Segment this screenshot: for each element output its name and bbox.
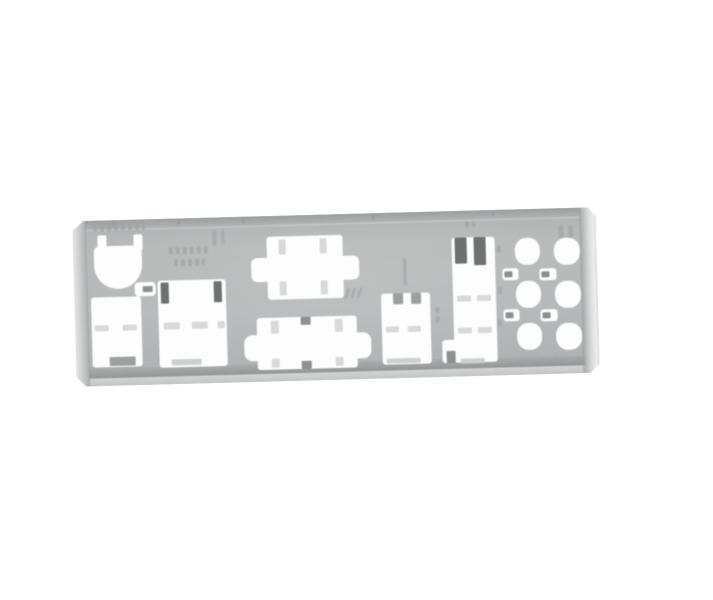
window-tab [542,312,550,318]
window-tab [504,271,512,277]
embossed-marking [498,320,502,327]
audio-jack-cutout [556,322,583,350]
io-shield-photo [0,0,713,600]
audio-jack-cutout [553,237,580,265]
grounding-finger [454,237,467,263]
retention-tab [301,317,311,325]
left-usb-block-bottom-tab [110,356,136,366]
fold-tick [372,214,375,220]
cutout-shading [335,319,343,332]
indicator-window-cutout [502,268,518,280]
window-tab [505,312,513,318]
audio-jack-cutout [555,280,582,308]
cutout-shading [123,324,137,330]
cutout-shading [336,357,344,366]
cutout-shading [386,326,399,332]
cutout-shading [192,321,208,328]
latch-slot [161,283,170,304]
cutout-shading [387,358,421,364]
embossed-marking [540,358,568,364]
plate-left-rolled-edge [72,221,89,387]
embossed-marking [498,288,502,295]
cutout-shading [408,326,421,332]
embossed-stamp-marking [169,246,209,254]
cutout-shading [458,327,472,333]
cutout-shading [278,239,285,254]
cutout-shading [457,295,471,301]
window-tab [541,271,549,277]
cutout-shading [477,295,491,301]
embossed-marking [212,230,216,245]
embossed-marking [465,221,475,227]
embossed-stamp-marking [93,222,145,231]
grounding-tab [447,351,456,363]
cutout-shading [164,322,180,329]
audio-jack-cutout [517,322,543,350]
cutout-shading [321,280,328,294]
fold-tick [177,219,180,225]
cutout-shading [478,327,492,333]
audio-jack-cutout [514,237,540,265]
embossed-marking [356,287,362,298]
audio-jack-cutout [516,280,542,308]
embossed-marking [435,307,439,313]
embossed-stamp-marking [174,259,205,267]
fold-tick [492,211,495,217]
plate-right-rolled-edge [581,207,600,373]
indicator-window-cutout [540,309,557,321]
cutout-shading [271,321,279,334]
cutout-shading [319,238,326,253]
embossed-marking [497,246,501,253]
latch-slot [214,281,223,302]
small-slot-tab [143,286,153,292]
cutout-shading [172,359,202,366]
io-shield-plate [72,207,600,387]
fold-tick [242,217,245,223]
retention-tab [302,361,312,369]
usb-symbol-marking [403,258,407,285]
grounding-tab [393,293,403,304]
cutout-shading [95,325,109,331]
grounding-tab [411,293,421,304]
cutout-shading [280,281,287,295]
indicator-window-cutout [503,309,519,321]
indicator-window-cutout [539,268,556,280]
grounding-finger [473,237,486,265]
cutout-shading [272,359,280,368]
cutout-shading [218,321,225,328]
embossed-marking [558,225,563,238]
embossed-marking [568,225,573,238]
cutout-shading [461,358,485,364]
embossed-marking [221,231,224,244]
embossed-marking [436,316,440,322]
